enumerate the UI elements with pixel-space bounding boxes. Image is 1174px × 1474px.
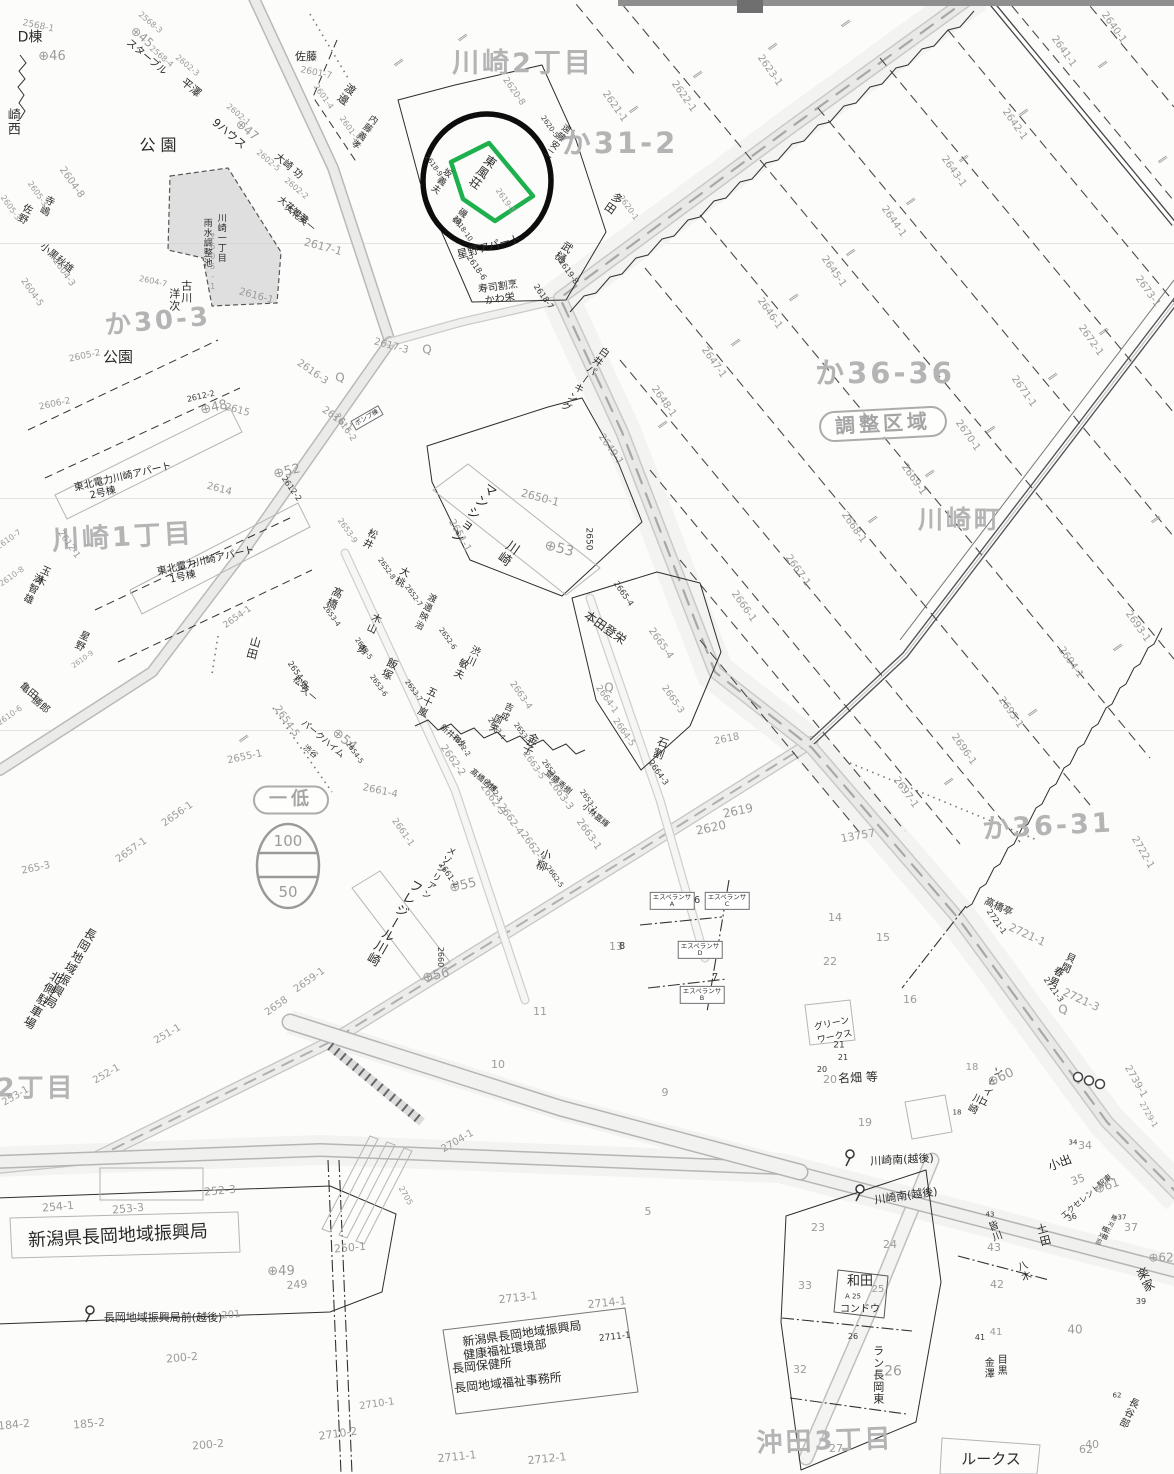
map-label: 2601-7 <box>299 66 332 82</box>
map-label: 星野 <box>71 628 90 652</box>
map-label: 2620-8 <box>500 76 526 108</box>
map-label: 2669-1 <box>899 462 928 497</box>
map-label: 川崎町 <box>918 507 1002 533</box>
map-label: 2618-6 <box>464 254 487 282</box>
map-label: 34 <box>1069 1139 1078 1146</box>
map-label: 長岡地域振興局前(越後) <box>104 1312 223 1324</box>
map-label: 36 <box>1066 1212 1078 1223</box>
map-label: 長谷部 <box>1115 1395 1138 1429</box>
map-label: 2664-5 <box>610 717 636 749</box>
map-label: ‖ <box>984 425 995 435</box>
map-label: 2657-1 <box>114 837 149 866</box>
map-label: 飯塚 <box>379 656 400 683</box>
map-label: 249 <box>286 1278 308 1291</box>
map-label: 41 <box>990 1328 1003 1339</box>
map-label: 18 <box>953 1109 962 1116</box>
map-label: ⊕46 <box>38 50 65 64</box>
map-label: 2705 <box>396 1185 413 1207</box>
map-label: ‖ <box>392 58 403 68</box>
map-label: 新潟県長岡地域振興局 <box>28 1223 209 1251</box>
map-label: 2693-1 <box>1123 609 1152 644</box>
map-label: 2652-8 <box>376 557 396 582</box>
map-label: 27 <box>829 1443 843 1455</box>
map-label: 250-1 <box>334 1241 367 1255</box>
map-label: ⊕49 <box>267 1265 294 1279</box>
map-label: D棟 <box>18 31 43 46</box>
map-label: 古川 <box>180 280 192 304</box>
map-label: 2670-1 <box>953 418 982 453</box>
map-label: 2714-1 <box>587 1295 627 1311</box>
map-label: ⊕53 <box>543 538 575 560</box>
map-label: 2711-1 <box>599 1332 632 1345</box>
map-label: 23 <box>811 1222 825 1234</box>
map-label: 2604-7 <box>138 275 167 289</box>
map-label: ‖ <box>923 469 934 479</box>
map-label: 5 <box>645 1206 652 1218</box>
map-label: 2694-1 <box>1056 645 1085 680</box>
map-label: 9 <box>662 1087 669 1099</box>
map-label: エスペランサ B <box>680 986 725 1004</box>
map-label: 2619-5 <box>493 187 516 215</box>
map-label: 2605-2 <box>68 349 101 365</box>
map-label: 2649-1 <box>596 432 625 467</box>
map-label: 2662-4 <box>496 802 525 837</box>
map-label: 2722-1 <box>1129 835 1156 871</box>
map-label: 小出 <box>1047 1153 1074 1173</box>
map-label: 2695-1 <box>996 695 1025 730</box>
map-label: 252-1 <box>92 1063 122 1087</box>
map-label: Q <box>422 344 431 357</box>
map-label: 2658 <box>264 995 291 1018</box>
map-label: ‖ <box>729 338 740 348</box>
map-label: エスペランサ D <box>678 941 723 959</box>
map-label: ルークス <box>961 1452 1021 1468</box>
map-label: 2641-1 <box>1049 34 1078 69</box>
map-label: 252-3 <box>204 1184 237 1198</box>
map-label: 2653-4 <box>321 604 341 629</box>
map-label: 2619-8 <box>556 258 579 286</box>
map-label: 2712-1 <box>527 1451 567 1467</box>
map-label: 8 <box>619 942 625 953</box>
cadastral-map: D棟⊕462568-1崎西⊕45スターブル2568-32568-4平澤2602-… <box>0 0 1174 1474</box>
map-label: 大花英一 <box>282 204 316 234</box>
map-label: 渡邊 <box>334 81 357 107</box>
map-label: 2654-1 <box>222 605 254 631</box>
map-label: 和田 <box>847 1275 873 1289</box>
map-label: ‖ <box>1026 708 1037 718</box>
map-label: 平澤 <box>179 77 203 100</box>
map-label: ‖ <box>844 248 855 258</box>
map-label: 佐藤 <box>295 51 317 63</box>
map-label: 2618-9 <box>423 154 443 179</box>
map-label: 川崎2丁目 <box>452 50 594 78</box>
label-layer: D棟⊕462568-1崎西⊕45スターブル2568-32568-4平澤2602-… <box>0 0 1174 1474</box>
map-label: ‖ <box>1017 108 1028 118</box>
map-label: 2653-9 <box>335 517 358 545</box>
map-label: 2654-5 <box>272 704 301 739</box>
map-label: 松井 <box>359 526 378 550</box>
map-label: 東北電力川崎アパート <box>73 462 173 495</box>
map-label: 2601-4 <box>311 83 334 111</box>
map-label: ‖ <box>1111 643 1122 653</box>
map-label: 土田 <box>1034 1222 1051 1248</box>
map-label: 40 <box>1085 1439 1099 1451</box>
map-label: 沖田3丁目 <box>756 1426 894 1458</box>
map-label: 34 <box>1078 1140 1092 1152</box>
map-label: 7 <box>712 973 718 984</box>
map-label: 2614 <box>205 482 232 499</box>
map-label: ‖ <box>866 515 877 525</box>
map-label: 満智雄 <box>19 571 42 605</box>
map-label: 崎西 <box>5 108 19 136</box>
map-label: 目黒 <box>995 1354 1006 1376</box>
map-label: 200-2 <box>192 1438 225 1452</box>
map-label: 2617-1 <box>303 236 344 257</box>
map-label: 21 <box>838 1054 848 1062</box>
map-label: 24 <box>883 1239 897 1251</box>
map-label: 2602-3 <box>173 54 200 79</box>
map-label: 2653-7 <box>403 679 423 704</box>
map-label: 2652-6 <box>437 627 457 652</box>
map-label: 2652-7 <box>403 584 423 609</box>
map-label: ‖ <box>627 105 638 115</box>
map-label: 2713-1 <box>498 1290 538 1306</box>
map-label: 18 <box>966 1063 979 1074</box>
map-label: 東風荘 <box>466 152 499 191</box>
map-label: 川崎南(越後) <box>874 1186 939 1206</box>
map-label: 2650-1 <box>520 487 561 508</box>
map-label: 2640-1 <box>1099 10 1128 45</box>
map-label: 2610-8 <box>0 565 26 588</box>
map-label: 長岡保健所 <box>451 1357 512 1376</box>
map-label: A 25 <box>845 1293 861 1300</box>
map-label: 公 園 <box>139 138 176 155</box>
map-label: 2710-1 <box>359 1397 396 1412</box>
map-label: ‖ <box>839 19 850 29</box>
map-label: ⊕61 <box>1093 1176 1121 1196</box>
map-label: 40 <box>1067 1324 1082 1337</box>
map-label: 2665-4 <box>646 626 675 661</box>
map-label: 2704-1 <box>440 1129 476 1156</box>
map-label: コンドウ <box>840 1305 880 1316</box>
map-label: ‖ <box>904 197 915 207</box>
map-label: 14 <box>828 912 842 924</box>
map-label: 42 <box>990 1279 1004 1291</box>
map-label: か30-3 <box>104 304 212 340</box>
map-label: 32 <box>793 1364 807 1376</box>
map-label: ⊕56 <box>421 966 451 985</box>
map-label: 2604-8 <box>57 165 86 200</box>
map-label: ‖ <box>957 154 968 164</box>
map-label: ‖ <box>942 777 953 787</box>
map-label: 2610-6 <box>0 704 24 727</box>
map-label: 10 <box>491 1059 505 1071</box>
map-label: 2646-1 <box>755 296 784 331</box>
map-label: 6 <box>694 896 700 907</box>
map-label: 2673-1 <box>1133 274 1162 309</box>
map-label: 2620-5 <box>539 115 559 140</box>
map-label: 2661-4 <box>362 783 399 801</box>
map-label: 2668-1 <box>839 510 868 545</box>
map-label: 265-3 <box>21 861 52 877</box>
map-label: 21 <box>833 1041 844 1050</box>
map-label: 2654-5 <box>344 741 364 766</box>
map-label: 2615 <box>223 403 250 420</box>
map-label: かわ栄 <box>484 293 515 308</box>
map-label: エスペランサ A <box>650 892 695 910</box>
map-label: ‖ <box>1096 60 1107 70</box>
map-label: ‖ <box>1046 372 1057 382</box>
map-label: 山田 <box>244 635 261 661</box>
map-label: 251-1 <box>153 1023 183 1047</box>
map-label: 253-3 <box>112 1202 145 1216</box>
map-label: 石割 <box>650 735 669 762</box>
map-label: ‖ <box>766 42 777 52</box>
map-label: Q <box>335 372 344 385</box>
map-label: 2729-1 <box>1137 1101 1158 1130</box>
map-label: エスペランサ C <box>705 892 750 910</box>
map-label: 19 <box>858 1117 872 1129</box>
map-label: 13757 <box>840 827 876 844</box>
map-label: 16 <box>903 994 917 1006</box>
map-label: 43 <box>986 1211 995 1218</box>
map-label: 敏夫 <box>450 656 469 680</box>
map-label: 2667-1 <box>783 553 812 588</box>
map-label: 名畑 等 <box>838 1071 878 1086</box>
map-label: 本田登栄 <box>582 609 629 647</box>
map-label: ‖ <box>1097 327 1108 337</box>
map-label: ⊕55 <box>448 876 478 895</box>
map-label: 2604-5 <box>18 277 44 309</box>
map-label: 11 <box>533 1006 547 1018</box>
map-label: 2645-1 <box>819 254 848 289</box>
map-label: Q <box>1058 1004 1067 1017</box>
map-label: 2620-1 <box>616 194 639 222</box>
map-label: 公園 <box>103 350 133 366</box>
map-label: 2606-2 <box>38 397 71 413</box>
map-label: 22 <box>823 956 837 968</box>
map-label: 26 <box>848 1333 858 1341</box>
map-label: 2659-1 <box>292 967 327 996</box>
map-label: 川崎 <box>964 1091 983 1115</box>
map-label: 金澤 <box>982 1357 993 1379</box>
map-label: フレジール川崎 <box>363 876 424 968</box>
map-label: 2650 <box>583 528 592 551</box>
map-label: 2660 <box>436 947 444 967</box>
map-label: 川崎 <box>493 537 520 568</box>
map-label: 2648-1 <box>649 384 678 419</box>
map-label: 2623-1 <box>755 53 784 88</box>
map-label: 白井パーキング <box>557 343 610 412</box>
map-label: 2710-2 <box>318 1426 358 1443</box>
map-label: 調整区域 <box>818 405 947 443</box>
map-label: 254-1 <box>42 1200 75 1214</box>
map-label: 41 <box>975 1334 985 1342</box>
map-label: か36-31 <box>982 809 1115 844</box>
map-label: ⊕62 <box>1148 1252 1173 1265</box>
map-label: 2622-1 <box>669 79 698 114</box>
map-label: 25 <box>872 1285 885 1296</box>
map-label: 2721-1 <box>1007 922 1047 949</box>
map-label: 2665-4 <box>611 580 634 608</box>
map-label: 2662-5 <box>544 865 564 890</box>
map-label: 2671-1 <box>1009 374 1038 409</box>
map-label: 100 <box>274 834 303 850</box>
map-label: か31-2 <box>562 128 679 158</box>
map-label: 2647-1 <box>699 345 728 380</box>
map-label: 2617-3 <box>373 337 410 356</box>
map-label: 2697-1 <box>891 775 920 810</box>
map-label: ポンプ棟 <box>350 405 383 431</box>
map-label: 62 <box>1113 1392 1122 1399</box>
map-label: 2721-3 <box>1041 976 1064 1004</box>
map-label: 勝郎 <box>29 696 51 717</box>
map-label: 楽家 <box>1134 1266 1156 1295</box>
map-label: 2655-1 <box>227 749 264 767</box>
map-label: 2696-1 <box>949 732 978 767</box>
map-label: 2616-1 <box>238 287 275 306</box>
map-label: 33 <box>798 1280 812 1292</box>
map-label: 20 <box>823 1074 837 1086</box>
map-label: 2619 <box>722 802 754 821</box>
map-label: 2621-1 <box>600 89 629 124</box>
map-label: 26 <box>884 1365 902 1380</box>
map-label: 2644-1 <box>879 204 908 239</box>
map-label: ‖ <box>656 420 667 430</box>
map-label: 渋谷 <box>301 744 319 761</box>
map-label: ‖ <box>456 33 467 43</box>
map-label: 2620 <box>695 819 727 838</box>
map-label: 185-2 <box>73 1417 106 1431</box>
map-label: 2666-1 <box>729 589 758 624</box>
map-label: 2664-3 <box>646 759 669 787</box>
map-label: ‖ <box>691 70 702 80</box>
map-label: 一低 <box>253 786 329 815</box>
map-label: 2618-7 <box>531 283 554 311</box>
map-label: 43 <box>987 1242 1001 1254</box>
map-label: 2616-3 <box>294 359 329 388</box>
map-label: 200-2 <box>166 1351 199 1365</box>
map-label: 2661-1 <box>389 817 415 849</box>
map-label: 長岡地域福祉事務所 <box>454 1371 563 1395</box>
map-label: 2618 <box>713 732 740 748</box>
map-label: か36-36 <box>815 358 955 388</box>
map-label: 八木 <box>1013 1260 1030 1284</box>
map-label: ‖ <box>237 734 248 744</box>
map-label: 39 <box>1136 1298 1146 1306</box>
map-label: 15 <box>876 932 890 944</box>
map-label: ラン長岡東 <box>872 1345 884 1405</box>
map-label: 50 <box>278 885 297 901</box>
map-label: 2610-7 <box>0 528 23 551</box>
map-label: 川崎南(越後) <box>870 1153 934 1168</box>
map-label: 2656-1 <box>160 801 195 830</box>
map-label: ‖ <box>1149 515 1160 525</box>
map-label: 2711-1 <box>437 1449 477 1465</box>
map-label: 2605-1 <box>208 232 216 292</box>
map-label: 2665-3 <box>659 684 685 716</box>
map-label: 37 <box>1124 1222 1138 1234</box>
map-label: 35 <box>1069 1172 1086 1188</box>
map-label: 2672-1 <box>1076 323 1105 358</box>
map-label: 184-2 <box>0 1418 30 1432</box>
map-label: 2610-9 <box>71 650 96 670</box>
map-label: ‖ <box>1156 155 1167 165</box>
map-label: 2739-1 <box>1122 1064 1149 1100</box>
map-label: ‖ <box>787 293 798 303</box>
map-label: 201 <box>221 1310 241 1322</box>
map-label: 2612-2 <box>279 475 302 503</box>
